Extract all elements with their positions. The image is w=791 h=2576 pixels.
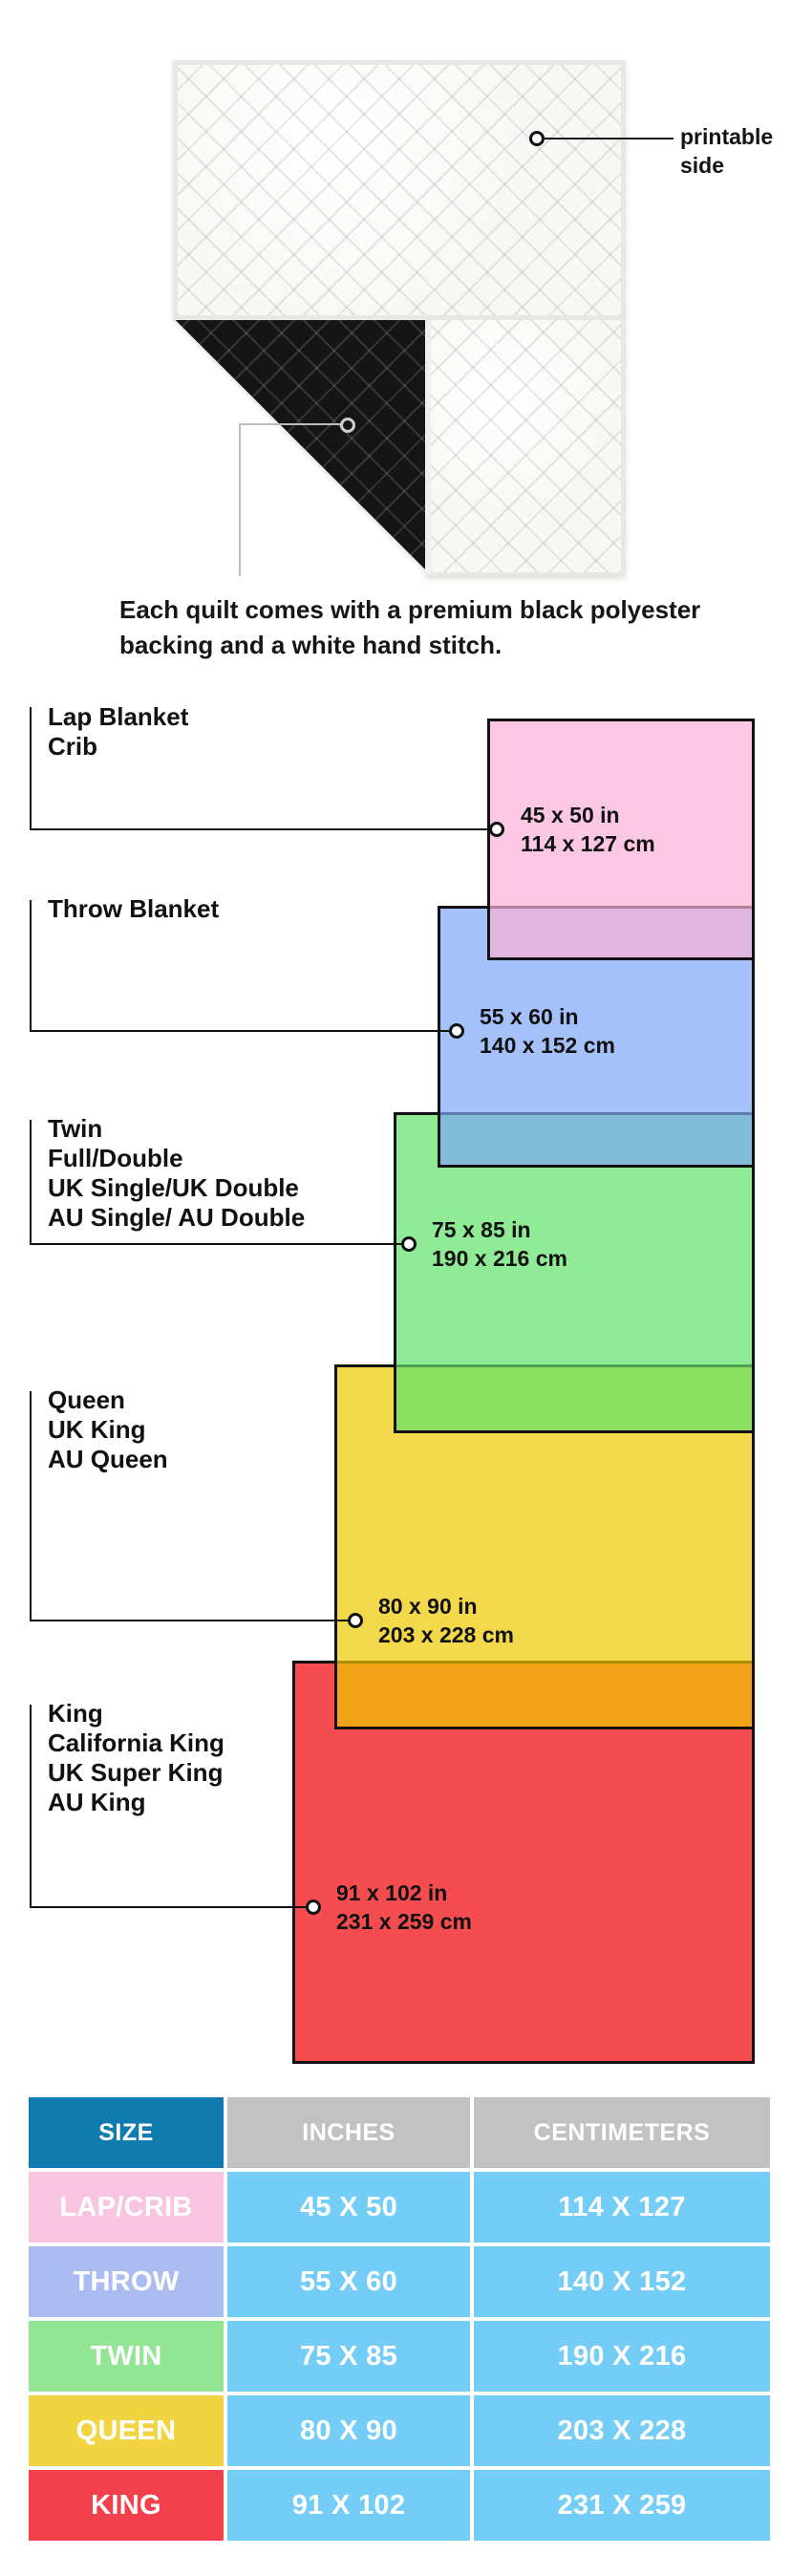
caption: Each quilt comes with a premium black po…	[119, 592, 700, 663]
size-label-line: UK Single/UK Double	[48, 1173, 305, 1203]
quilt-black-backing-fold	[173, 320, 425, 577]
printable-side-label-line1: printable	[680, 122, 773, 151]
table-header-cell-inches: INCHES	[227, 2097, 470, 2168]
backing-marker-icon	[340, 418, 355, 433]
table-cell-size: TWIN	[29, 2321, 224, 2392]
size-dims-twin: 75 x 85 in190 x 216 cm	[432, 1215, 567, 1273]
table-cell-centimeters: 190 X 216	[474, 2321, 770, 2392]
table-cell-inches: 75 X 85	[227, 2321, 470, 2392]
table-cell-centimeters: 114 X 127	[474, 2172, 770, 2243]
table-cell-inches: 91 X 102	[227, 2470, 470, 2541]
size-label-lap: Lap BlanketCrib	[48, 702, 188, 762]
table-cell-centimeters: 140 X 152	[474, 2246, 770, 2317]
size-dims-inches: 91 x 102 in	[336, 1878, 472, 1907]
table-cell-centimeters: 231 X 259	[474, 2470, 770, 2541]
size-callout-line-h-queen	[30, 1620, 348, 1621]
table-header-cell-size: SIZE	[29, 2097, 224, 2168]
size-callout-line-h-lap	[30, 828, 489, 830]
size-label-twin: TwinFull/DoubleUK Single/UK DoubleAU Sin…	[48, 1114, 305, 1233]
size-dims-inches: 75 x 85 in	[432, 1215, 567, 1244]
table-cell-size: LAP/CRIB	[29, 2172, 224, 2243]
table-cell-size: QUEEN	[29, 2395, 224, 2466]
size-callout-line-h-throw	[30, 1030, 449, 1032]
size-label-line: California King	[48, 1728, 224, 1758]
size-marker-icon-throw	[449, 1023, 464, 1039]
size-dims-cm: 203 x 228 cm	[378, 1621, 514, 1649]
size-dims-inches: 55 x 60 in	[480, 1002, 615, 1031]
printable-side-label-line2: side	[680, 151, 773, 180]
size-marker-icon-queen	[348, 1613, 363, 1628]
size-label-queen: QueenUK KingAU Queen	[48, 1385, 168, 1474]
quilt-front-right	[425, 320, 626, 577]
size-label-line: Lap Blanket	[48, 702, 188, 732]
caption-line1: Each quilt comes with a premium black po…	[119, 592, 700, 628]
printable-side-label: printable side	[680, 122, 773, 180]
size-dims-cm: 140 x 152 cm	[480, 1031, 615, 1060]
caption-line2: backing and a white hand stitch.	[119, 628, 700, 663]
size-marker-icon-twin	[401, 1236, 417, 1252]
size-label-line: AU Queen	[48, 1445, 168, 1474]
size-label-line: AU King	[48, 1788, 224, 1817]
table-cell-inches: 45 X 50	[227, 2172, 470, 2243]
size-marker-icon-king	[306, 1900, 321, 1915]
size-dims-lap: 45 x 50 in114 x 127 cm	[521, 801, 655, 858]
size-dims-inches: 45 x 50 in	[521, 801, 655, 829]
size-label-line: UK King	[48, 1415, 168, 1445]
size-dims-inches: 80 x 90 in	[378, 1592, 514, 1621]
quilt-front-top	[173, 60, 626, 320]
size-label-line: Twin	[48, 1114, 305, 1144]
size-label-king: KingCalifornia KingUK Super KingAU King	[48, 1699, 224, 1817]
size-callout-line-v-lap	[30, 707, 32, 830]
size-dims-cm: 231 x 259 cm	[336, 1907, 472, 1936]
size-label-line: AU Single/ AU Double	[48, 1203, 305, 1233]
size-label-throw: Throw Blanket	[48, 894, 219, 924]
table-cell-inches: 55 X 60	[227, 2246, 470, 2317]
size-callout-line-v-queen	[30, 1391, 32, 1621]
backing-callout-line-h	[240, 423, 342, 425]
infographic-page: printable side Each quilt comes with a p…	[0, 0, 791, 2576]
size-dims-king: 91 x 102 in231 x 259 cm	[336, 1878, 472, 1936]
size-callout-line-v-throw	[30, 900, 32, 1032]
size-label-line: Queen	[48, 1385, 168, 1415]
table-cell-inches: 80 X 90	[227, 2395, 470, 2466]
size-label-line: King	[48, 1699, 224, 1728]
size-callout-line-v-twin	[30, 1120, 32, 1245]
size-label-line: Throw Blanket	[48, 894, 219, 924]
size-callout-line-h-twin	[30, 1243, 401, 1245]
size-dims-queen: 80 x 90 in203 x 228 cm	[378, 1592, 514, 1649]
size-label-line: UK Super King	[48, 1758, 224, 1788]
size-marker-icon-lap	[489, 822, 504, 837]
size-label-line: Crib	[48, 732, 188, 762]
size-callout-line-v-king	[30, 1705, 32, 1908]
table-header-cell-centimeters: CENTIMETERS	[474, 2097, 770, 2168]
printable-side-callout-line	[544, 138, 673, 140]
size-dims-throw: 55 x 60 in140 x 152 cm	[480, 1002, 615, 1060]
table-cell-size: KING	[29, 2470, 224, 2541]
backing-callout-line-v	[239, 423, 241, 576]
size-label-line: Full/Double	[48, 1144, 305, 1173]
table-cell-size: THROW	[29, 2246, 224, 2317]
size-dims-cm: 114 x 127 cm	[521, 829, 655, 858]
size-callout-line-h-king	[30, 1906, 306, 1908]
size-dims-cm: 190 x 216 cm	[432, 1244, 567, 1273]
table-cell-centimeters: 203 X 228	[474, 2395, 770, 2466]
printable-side-marker-icon	[529, 131, 545, 146]
